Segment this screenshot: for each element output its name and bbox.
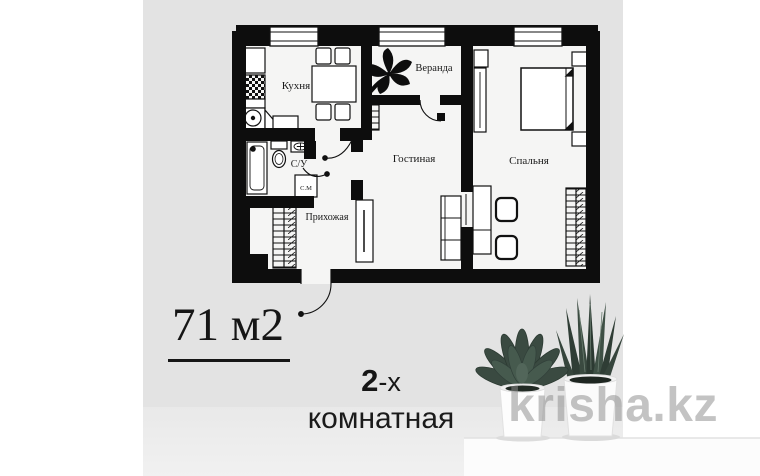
floor-plan: Кухня Веранда Гостиная Спальня С/У С.М П… — [232, 25, 600, 316]
window-bedroom — [514, 27, 562, 46]
living-room-label: Гостиная — [393, 153, 436, 165]
rooms-count-line: 2-х — [286, 363, 476, 399]
sofa — [441, 196, 461, 260]
kitchen-label: Кухня — [282, 80, 310, 92]
bedroom-label: Спальня — [509, 155, 549, 167]
hallway-wardrobe — [273, 206, 296, 268]
rooms-word: комнатная — [266, 402, 496, 436]
bed — [521, 68, 573, 130]
windows — [270, 27, 562, 46]
krisha-watermark-logo: krisha.kz — [508, 378, 760, 433]
nightstand — [572, 132, 588, 146]
hallway-label: Прихожая — [306, 212, 349, 223]
area-underline — [168, 359, 290, 362]
living-cabinet — [356, 200, 373, 262]
bathroom-label: С/У — [291, 159, 308, 170]
white-shelf — [464, 438, 760, 476]
window-kitchen — [270, 27, 318, 46]
bedroom-dresser — [474, 50, 488, 132]
rooms-suffix: -х — [378, 367, 401, 397]
veranda-label: Веранда — [415, 63, 453, 74]
toilet-icon — [271, 141, 287, 168]
nightstand — [572, 52, 588, 66]
listing-image: Кухня Веранда Гостиная Спальня С/У С.М П… — [0, 0, 760, 476]
rooms-count: 2 — [361, 363, 378, 398]
washing-machine-label: С.М — [300, 185, 312, 192]
bedroom-wardrobe — [566, 188, 586, 266]
window-veranda — [379, 27, 445, 46]
area-value: 71 м2 — [158, 300, 298, 352]
bathtub — [247, 142, 267, 194]
